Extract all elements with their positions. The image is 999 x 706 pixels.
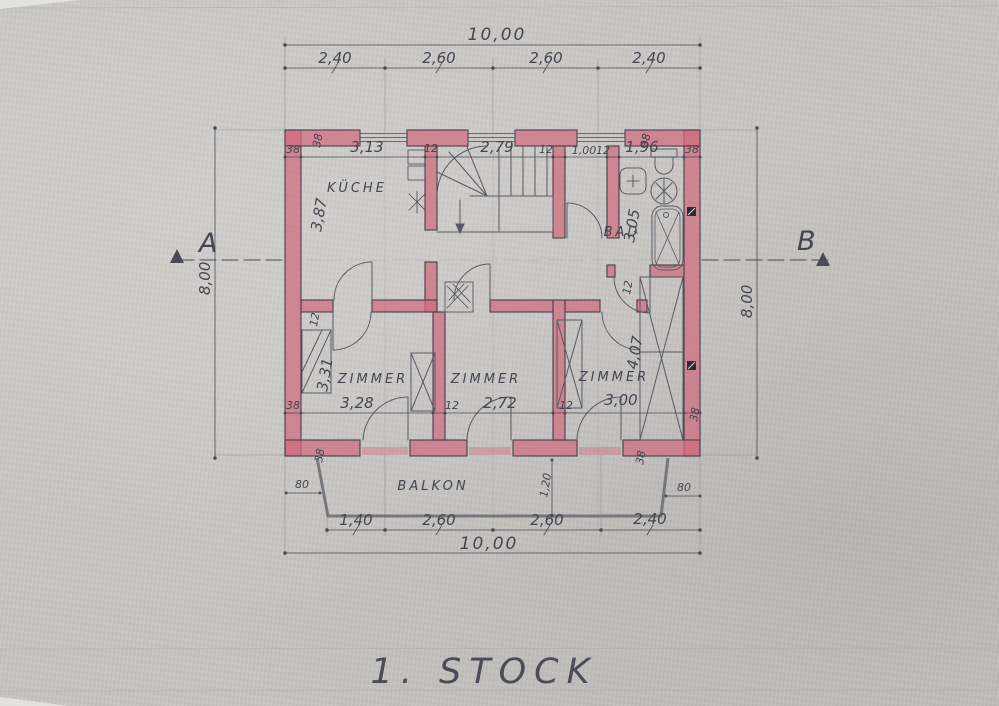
dim-wall-left: 38: [286, 143, 300, 156]
stairs: [437, 146, 553, 233]
dim-height-left: 8,00: [196, 262, 214, 295]
dim-wall-right-bottom: 38: [687, 406, 702, 422]
dim-kitchen-depth: 3,87: [307, 196, 331, 232]
dim-top-seg-2: 2,60: [422, 49, 455, 67]
dim-room-right-depth: 4,07: [623, 334, 647, 370]
dim-partition-kitchen-room: 12: [307, 311, 322, 327]
dimension-top: 10,00 2,40 2,60 2,60 2,40: [283, 25, 702, 73]
dimension-left: 8,00: [196, 126, 217, 460]
room-middle-label: ZIMMER: [450, 372, 521, 387]
dim-partition2: 12: [539, 143, 553, 156]
room-labels: KÜCHE BAD ZIMMER ZIMMER ZIMMER BALKON: [327, 179, 649, 494]
room-left-label: ZIMMER: [337, 372, 408, 387]
dim-balcony-left: 80: [295, 478, 309, 491]
duct-symbols: [408, 150, 473, 312]
dim-wall-38-bottomright: 38: [633, 449, 648, 465]
dim-overall-bottom: 10,00: [460, 534, 519, 554]
sink-icon: [620, 168, 646, 194]
dim-balcony-right: 80: [677, 481, 691, 494]
dim-stairs-width: 2,79: [480, 138, 513, 156]
dim-top-seg-1: 2,40: [318, 49, 351, 67]
floor-plan-drawing: 10,00 2,40 2,60 2,60 2,40 8,00 8,00 A B: [0, 0, 999, 706]
scan-artifacts: [0, 0, 999, 706]
dim-bottom-seg-2: 2,60: [422, 511, 455, 529]
dim-wall-left-bottom: 38: [286, 399, 300, 412]
dim-kitchen-width: 3,13: [350, 138, 383, 156]
bath-label: BAD: [604, 225, 641, 240]
kitchen-label: KÜCHE: [327, 179, 387, 196]
dim-bottom-seg-4: 2,40: [633, 510, 666, 528]
chimney-hatch-icon: [447, 284, 470, 308]
room-right-label: ZIMMER: [578, 370, 649, 385]
title-block: 1. STOCK: [0, 648, 999, 692]
section-arrow-a: [170, 249, 184, 263]
dim-bottom-seg-3: 2,60: [530, 511, 563, 529]
dim-niche-width: 1,00: [572, 144, 597, 157]
kitchen-door: [334, 262, 372, 300]
dimension-right: 8,00: [738, 126, 759, 460]
dim-partition-bath: 12: [620, 279, 635, 295]
dim-room-right-width: 3,00: [604, 391, 637, 409]
vent-star-icon: [409, 191, 425, 213]
dim-partition2-bottom: 12: [559, 399, 573, 412]
dim-wall-38-topleft: 38: [310, 132, 325, 148]
section-marker-b: B: [797, 226, 817, 257]
dim-partition1: 12: [424, 142, 438, 155]
dim-wall-38-topright: 38: [638, 132, 653, 148]
dim-partition3: 12: [596, 144, 610, 157]
closet-icon: [640, 277, 683, 440]
dim-room-left-width: 3,28: [340, 394, 373, 412]
dim-partition1-bottom: 12: [445, 399, 459, 412]
dim-wall-right: 38: [685, 143, 699, 156]
niche-door: [567, 203, 602, 238]
balcony-label: BALKON: [397, 479, 468, 494]
wardrobe-icon: [411, 353, 435, 411]
dim-overall-top: 10,00: [468, 25, 527, 45]
dim-top-seg-4: 2,40: [632, 49, 665, 67]
washbasin-icon: [651, 178, 677, 204]
section-arrow-b: [816, 252, 830, 266]
room-left-door: [333, 312, 371, 350]
dim-bottom-seg-1: 1,40: [339, 511, 372, 529]
page-title: 1. STOCK: [370, 652, 597, 692]
dim-top-seg-3: 2,60: [529, 49, 562, 67]
dim-room-middle-width: 2,72: [483, 394, 516, 412]
dim-height-right: 8,00: [738, 285, 756, 318]
dim-wall-38-bottomleft: 38: [312, 447, 327, 463]
section-marker-a: A: [197, 228, 218, 259]
dimension-depths: 3,87 3,31 4,07 3,05 12 12: [307, 196, 647, 392]
